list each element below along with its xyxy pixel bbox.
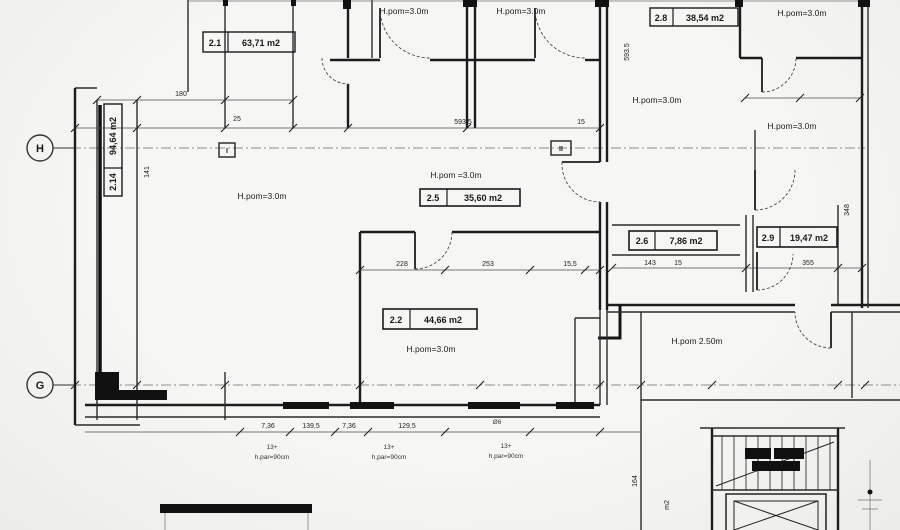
window-sill	[283, 402, 329, 409]
room-height: H.pom=3.0m	[407, 344, 456, 354]
dim-label: 129,5	[398, 423, 416, 430]
room-2-14-label: 2.14 94,64 m2	[104, 104, 122, 196]
staircase	[716, 436, 834, 490]
door-arc	[562, 162, 600, 202]
dim-label-vertical: 164	[632, 475, 639, 487]
room-area: 35,60 m2	[464, 193, 502, 203]
rebar-note: Ø6	[493, 419, 502, 426]
wall-stub	[735, 0, 743, 7]
wall-stub	[343, 0, 351, 9]
sill-height-note: h.par=90cm	[489, 453, 524, 460]
window-count-note: 13+	[266, 444, 277, 451]
door-arc	[762, 58, 796, 92]
door-arc	[757, 254, 793, 290]
dim-label: 25	[233, 116, 241, 123]
room-2-9-label: 2.9 19,47 m2	[757, 227, 837, 247]
height-label: H.pom=3.0m	[380, 6, 429, 16]
column-fill	[95, 390, 167, 400]
dim-label-vertical: 593.5	[624, 43, 631, 61]
height-label: H.pom=3.0m	[768, 121, 817, 131]
dim-label: 355	[802, 260, 814, 267]
dim-label: 593.5	[454, 119, 472, 126]
dim-label: 15,5	[563, 261, 577, 268]
wall-stub	[291, 0, 296, 6]
section-ii-label: II	[559, 146, 563, 153]
dim-label-vertical: 348	[844, 204, 851, 216]
room-number: 2.14	[108, 173, 118, 191]
axis-marker-h: H	[27, 135, 53, 161]
door-arc	[322, 58, 348, 84]
dim-label: 253	[482, 261, 494, 268]
axis-h-label: H	[36, 143, 44, 155]
floor-plan-drawing: H G I II 2.1 63,71 m2 2.14 94,64 m2 H.po…	[0, 0, 900, 530]
room-2-1-label: 2.1 63,71 m2	[203, 32, 295, 52]
room-number: 2.8	[655, 13, 668, 23]
dim-label: 139,5	[302, 423, 320, 430]
floor-plan-sheet: H G I II 2.1 63,71 m2 2.14 94,64 m2 H.po…	[0, 0, 900, 530]
height-label: H.pom=3.0m	[633, 95, 682, 105]
room-number: 2.6	[636, 236, 649, 246]
wall-stub	[463, 0, 477, 7]
wall-stub	[223, 0, 228, 6]
room-2-8-label: 2.8 38,54 m2	[650, 8, 738, 26]
window-count-note: 13+	[383, 444, 394, 451]
height-label: H.pom 2.50m	[671, 336, 722, 346]
room-2-6-label: 2.6 7,86 m2	[629, 231, 717, 250]
room-area: 7,86 m2	[669, 236, 702, 246]
axis-marker-g: G	[27, 372, 53, 398]
height-label: H.pom=3.0m	[238, 191, 287, 201]
room-2-5-label: H.pom =3.0m 2.5 35,60 m2	[420, 170, 520, 206]
room-area: 63,71 m2	[242, 38, 280, 48]
room-number: 2.9	[762, 233, 775, 243]
height-label: H.pom=3.0m	[497, 6, 546, 16]
room-number: 2.1	[209, 38, 222, 48]
grid-axis-lines	[53, 148, 900, 385]
stair-label-block	[774, 448, 804, 459]
dim-label: 7,36	[261, 423, 275, 430]
sill-height-note: h.par=90cm	[255, 454, 290, 461]
room-number: 2.5	[427, 193, 440, 203]
door-arc	[755, 170, 795, 210]
room-area: 44,66 m2	[424, 315, 462, 325]
dim-label-vertical: 141	[144, 166, 151, 178]
room-area: 38,54 m2	[686, 13, 724, 23]
room-2-2-label: 2.2 44,66 m2 H.pom=3.0m	[383, 309, 477, 354]
room-number: 2.2	[390, 315, 403, 325]
dim-label: 15	[674, 260, 682, 267]
ledger-bar	[160, 504, 312, 513]
room-area: 19,47 m2	[790, 233, 828, 243]
room-height: H.pom =3.0m	[430, 170, 481, 180]
corridor-step-jog	[598, 305, 620, 338]
door-arc	[415, 232, 452, 269]
section-marker-i: I	[219, 143, 235, 157]
sill-height-note: h.par=90cm	[372, 454, 407, 461]
section-i-label: I	[226, 148, 228, 155]
window-sill	[468, 402, 520, 409]
dim-label: 228	[396, 261, 408, 268]
door-arc	[795, 312, 831, 348]
wall-stub	[858, 0, 870, 7]
dim-label: 143	[644, 260, 656, 267]
height-label: H.pom=3.0m	[778, 8, 827, 18]
area-label-vertical: m2	[664, 500, 671, 510]
dim-label: 7,36	[342, 423, 356, 430]
elevator-shaft	[726, 494, 826, 530]
axis-g-label: G	[36, 380, 45, 392]
room-area: 94,64 m2	[108, 117, 118, 155]
wall-stub	[595, 0, 609, 7]
stair-label-block	[752, 461, 800, 471]
window-sill	[556, 402, 594, 409]
dim-label: 15	[577, 119, 585, 126]
benchmark-dot	[868, 490, 873, 495]
stair-label-block	[745, 448, 771, 459]
dim-label: 180	[175, 91, 187, 98]
window-count-note: 13+	[500, 443, 511, 450]
window-sill	[350, 402, 394, 409]
